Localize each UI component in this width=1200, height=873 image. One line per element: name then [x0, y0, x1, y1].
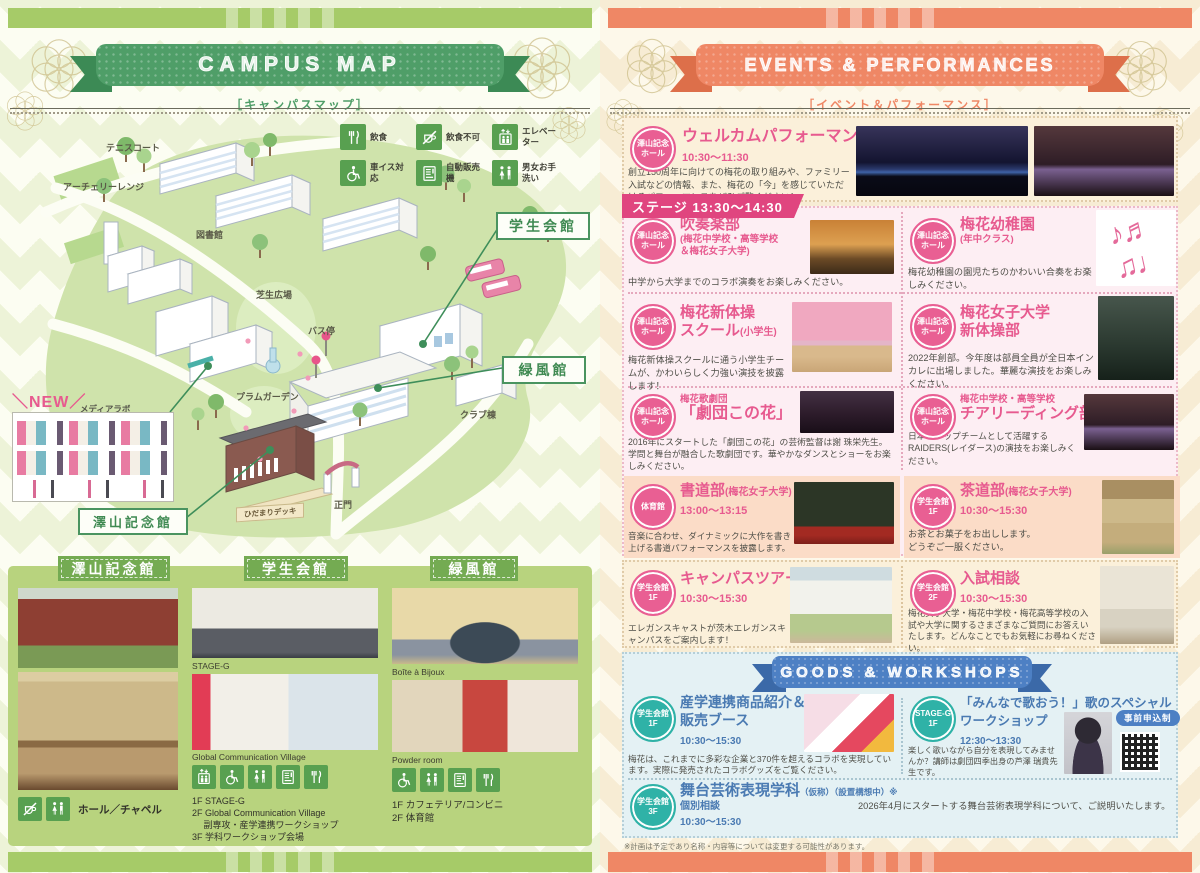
- venue-line2: ホール: [641, 327, 665, 337]
- event-brass-band: 澤山記念 ホール 吹奏楽部 (梅花中学校・高等学校 ＆梅花女子大学) 中学から大…: [624, 208, 900, 292]
- photo-gymnastics-kids: [792, 302, 892, 372]
- event-calligraphy: 体育館 書道部(梅花女子大学) 13:00～13:15 音楽に合わせ、ダイナミッ…: [624, 476, 900, 558]
- top-border-bar: [8, 8, 592, 28]
- event-subtitle: (梅花女子大学): [1005, 487, 1072, 498]
- footnote: ※計画は予定であり名称・内容等については変更する可能性があります。: [624, 841, 869, 852]
- legend-label: エレベーター: [522, 126, 562, 147]
- restroom-icon: [248, 765, 272, 789]
- photo-admissions-consult: [1100, 566, 1174, 644]
- event-collab-goods: 学生会館 1F 産学連携商品紹介＆ 販売ブース 10:30～15:30 梅花は、…: [624, 694, 900, 778]
- venue-line1: 学生会館: [637, 583, 669, 593]
- event-time: 10:30～15:30: [680, 813, 1180, 828]
- event-subtitle: (小学生): [740, 327, 777, 338]
- venue-badge: 澤山記念 ホール: [630, 126, 676, 172]
- venue-line1: 澤山記念: [637, 139, 669, 149]
- event-description: 梅花は、これまでに多彩な企業と370件を超えるコラボを実現しています。実際に発売…: [628, 754, 896, 776]
- venue-line2: 1F: [648, 719, 657, 729]
- venue-line1: STAGE-G: [915, 709, 951, 719]
- event-description: 2022年創部。今年度は部員全員が全日本インカレに出場しました。華麗な演技をお楽…: [908, 352, 1094, 391]
- legend-label: 男女お手洗い: [522, 162, 562, 183]
- goods-ribbon: GOODS & WORKSHOPS: [752, 656, 1052, 692]
- new-tag: ＼NEW／: [12, 388, 86, 412]
- event-title: 入試相談: [960, 570, 1020, 587]
- events-page: EVENTS & PERFORMANCES ［イベント＆パフォーマンス］ 澤山記…: [600, 0, 1200, 873]
- venue-line2: ホール: [641, 241, 665, 251]
- venue-badge: 体育館: [630, 484, 676, 530]
- no-food-icon: [18, 797, 42, 821]
- utensils-icon: [304, 765, 328, 789]
- event-tea-ceremony: 学生会館 1F 茶道部(梅花女子大学) 10:30～15:30 お茶とお菓子をお…: [904, 476, 1180, 558]
- event-sing-workshop: STAGE-G 1F 「みんなで歌おう！」歌のスペシャル ワークショップ 12:…: [904, 694, 1180, 778]
- venue-badge: 澤山記念 ホール: [910, 394, 956, 440]
- event-title-note: （仮称）（設置構想中）※: [800, 787, 898, 797]
- map-label-lawn-plaza: 芝生広場: [256, 289, 292, 300]
- venue-line1: 体育館: [641, 502, 665, 512]
- panel-header-sawayama: 澤山記念館: [58, 556, 170, 581]
- venue-line1: 澤山記念: [637, 407, 669, 417]
- photo-caption: STAGE-G: [192, 661, 230, 671]
- photo-stage-g: [192, 588, 378, 658]
- event-description: お茶とお菓子をお出しします。 どうぞご一服ください。: [908, 528, 1088, 554]
- event-stage-arts-dept: 学生会館 3F 舞台芸術表現学科（仮称）（設置構想中）※ 個別相談 10:30～…: [624, 782, 1180, 838]
- photo-caption: Global Communication Village: [192, 752, 306, 762]
- no-food-icon: [416, 124, 442, 150]
- venue-badge: 学生会館 2F: [910, 570, 956, 616]
- photo-global-communication-village: [192, 674, 378, 750]
- wheelchair-icon: [340, 160, 366, 186]
- venue-badge: 学生会館 1F: [910, 484, 956, 530]
- venue-line1: 澤山記念: [917, 231, 949, 241]
- venue-line2: ホール: [921, 241, 945, 251]
- event-title: チアリーディング部: [960, 405, 1094, 422]
- event-campus-tour: 学生会館 1F キャンパスツアー 10:30～15:30 エレガンスキャストが茨…: [624, 562, 900, 650]
- map-label-archery-range: アーチェリーレンジ: [63, 182, 144, 192]
- event-title: 産学連携商品紹介＆ 販売ブース: [680, 694, 806, 728]
- legend-label: 飲食: [370, 132, 410, 143]
- media-lab-illustration: [12, 412, 174, 502]
- photo-chapel: [18, 672, 178, 790]
- panel-header-ryokufu: 緑風館: [430, 556, 518, 581]
- map-label-club-building: クラブ棟: [460, 409, 497, 420]
- floor-line: 1F カフェテリア/コンビニ: [392, 800, 503, 813]
- photo-brass-band: [810, 220, 894, 274]
- venue-badge: 澤山記念 ホール: [910, 218, 956, 264]
- venue-line1: 澤山記念: [637, 231, 669, 241]
- map-label-plum-garden: プラムガーデン: [236, 391, 299, 402]
- stage-time-banner: ステージ 13:30～14:30: [622, 194, 804, 218]
- event-title: キャンパスツアー: [680, 570, 800, 587]
- photo-collab-goods: [804, 694, 894, 752]
- venue-line2: ホール: [921, 417, 945, 427]
- photo-opera: [800, 391, 894, 433]
- photo-calligraphy: [794, 482, 894, 544]
- panel-header-student-hall: 学生会館: [244, 556, 348, 581]
- bottom-border-bar: [608, 852, 1192, 872]
- qr-code: [1120, 732, 1160, 772]
- event-title: 茶道部: [960, 482, 1005, 499]
- event-description: 音楽に合わせ、ダイナミックに大作を書き上げる書道パフォーマンスを披露します。: [628, 530, 792, 554]
- event-description: 梅花幼稚園の園児たちのかわいい合奏をお楽しみください。: [908, 266, 1093, 292]
- event-subtitle: (梅花女子大学): [725, 487, 792, 498]
- goods-workshops-section: GOODS & WORKSHOPS 学生会館 1F 産学連携商品紹介＆ 販売ブー…: [622, 652, 1178, 838]
- tours-row: 学生会館 1F キャンパスツアー 10:30～15:30 エレガンスキャストが茨…: [622, 560, 1178, 648]
- venue-line1: 学生会館: [637, 709, 669, 719]
- event-title: 書道部: [680, 482, 725, 499]
- venue-line1: 澤山記念: [917, 407, 949, 417]
- header-divider: [10, 108, 590, 114]
- venue-badge: STAGE-G 1F: [910, 696, 956, 742]
- event-description: 2016年にスタートした「劇団この花」の芸術監督は謝 珠栄先生。学問と舞台が融合…: [628, 436, 896, 472]
- facility-icons-student-hall: [192, 765, 328, 789]
- stage-section: 澤山記念 ホール 吹奏楽部 (梅花中学校・高等学校 ＆梅花女子大学) 中学から大…: [622, 206, 1178, 556]
- photo-campus-tour: [790, 567, 892, 643]
- event-title: 梅花幼稚園: [960, 216, 1035, 233]
- venue-badge: 学生会館 3F: [630, 784, 676, 830]
- instruments-illustration: ♪♬♫♩: [1096, 210, 1176, 286]
- photo-boite-a-bijoux: [392, 588, 578, 664]
- photo-caption: Boîte à Bijoux: [392, 667, 444, 677]
- event-cheerleading: 澤山記念 ホール 梅花中学校・高等学校 チアリーディング部 日本のトップチームと…: [904, 386, 1180, 474]
- venue-line1: 澤山記念: [637, 317, 669, 327]
- map-label-tennis-court: テニスコート: [106, 143, 160, 153]
- utensils-icon: [476, 768, 500, 792]
- photo-sawayama-exterior: [18, 588, 178, 668]
- floor-list-ryokufu: 1F カフェテリア/コンビニ 2F 体育館: [392, 800, 503, 825]
- venue-line2: 1F: [648, 593, 657, 603]
- event-description: 2026年4月にスタートする舞台芸術表現学科について、ご説明いたします。: [858, 800, 1174, 813]
- map-box-label-ryokufu-hall: 緑風館: [502, 356, 586, 384]
- vending-icon: [276, 765, 300, 789]
- floor-line: 2F 体育館: [392, 813, 503, 826]
- event-description: エレガンスキャストが茨木エレガンスキャンパスをご案内します！: [628, 622, 786, 647]
- facility-label: ホール／チャペル: [78, 802, 162, 817]
- wheelchair-icon: [220, 765, 244, 789]
- photo-welcome-cheer: [1034, 126, 1174, 196]
- restroom-icon: [492, 160, 518, 186]
- venue-badge: 澤山記念 ホール: [630, 394, 676, 440]
- photo-cheerleading: [1084, 394, 1174, 450]
- event-gymnastics-school: 澤山記念 ホール 梅花新体操 スクール(小学生) 梅花新体操スクールに通う小学生…: [624, 292, 900, 386]
- facility-icons-sawayama: ホール／チャペル: [18, 797, 162, 821]
- venue-line2: 1F: [928, 507, 937, 517]
- event-description: 中学から大学までのコラボ演奏をお楽しみください。: [628, 276, 896, 289]
- restroom-icon: [420, 768, 444, 792]
- event-opera-troupe: 澤山記念 ホール 梅花歌劇団 「劇団この花」 2016年にスタートした「劇団この…: [624, 386, 900, 474]
- restroom-icon: [46, 797, 70, 821]
- events-ribbon: EVENTS & PERFORMANCES ［イベント＆パフォーマンス］: [670, 44, 1130, 92]
- bottom-border-bar: [8, 852, 592, 872]
- map-box-label-student-hall: 学生会館: [496, 212, 590, 240]
- page-title: EVENTS & PERFORMANCES: [744, 55, 1055, 76]
- facility-icons-ryokufu: [392, 768, 500, 792]
- photo-tea-ceremony: [1102, 480, 1174, 554]
- photo-powder-room: [392, 680, 578, 752]
- venue-line1: 澤山記念: [917, 317, 949, 327]
- event-title: 吹奏楽部: [680, 216, 740, 233]
- event-title: 「劇団この花」: [680, 405, 792, 422]
- venue-line2: 3F: [648, 807, 657, 817]
- header-divider: [610, 108, 1190, 114]
- map-label-bus-stop: バス停: [308, 325, 335, 336]
- event-title: 舞台芸術表現学科: [680, 782, 800, 799]
- top-border-bar: [608, 8, 1192, 28]
- venue-line2: ホール: [641, 417, 665, 427]
- photo-rhythmic-gymnastics: [1098, 296, 1174, 380]
- event-admissions-consult: 学生会館 2F 入試相談 10:30～15:30 梅花女子大学・梅花中学校・梅花…: [904, 562, 1180, 650]
- floor-line: 3F 学科ワークショップ会場: [192, 832, 339, 844]
- legend-label: 飲食不可: [446, 132, 486, 143]
- event-title: 梅花女子大学 新体操部: [960, 304, 1050, 339]
- floor-line: 2F Global Communication Village: [192, 808, 339, 820]
- legend-label: 車イス対応: [370, 162, 410, 183]
- floor-line: 副専攻・産学連携ワークショップ: [192, 820, 339, 832]
- floor-list-student-hall: 1F STAGE-G 2F Global Communication Villa…: [192, 796, 339, 844]
- wheelchair-icon: [392, 768, 416, 792]
- vending-icon: [448, 768, 472, 792]
- venue-line1: 学生会館: [917, 497, 949, 507]
- legend-label: 自動販売機: [446, 162, 486, 183]
- utensils-icon: [340, 124, 366, 150]
- venue-line2: ホール: [641, 149, 665, 159]
- venue-line2: 2F: [928, 593, 937, 603]
- venue-badge: 学生会館 1F: [630, 570, 676, 616]
- photo-caption: Powder room: [392, 755, 443, 765]
- venue-badge: 学生会館 1F: [630, 696, 676, 742]
- event-description: 楽しく歌いながら自分を表現してみませんか？講師は劇団四季出身の芦澤 瑞貴先生です…: [908, 746, 1060, 778]
- photo-welcome-stage: [856, 126, 1028, 196]
- campus-map-ribbon: CAMPUS MAP ［キャンパスマップ］: [70, 44, 530, 92]
- venue-badge: 澤山記念 ホール: [910, 304, 956, 350]
- event-kindergarten: 澤山記念 ホール 梅花幼稚園 (年中クラス) ♪♬♫♩ 梅花幼稚園の園児たちのか…: [904, 208, 1180, 292]
- map-legend: 飲食 飲食不可 エレベーター 車イス対応 自動販売機 男女お手洗い: [340, 124, 568, 186]
- campus-map-page: CAMPUS MAP ［キャンパスマップ］: [0, 0, 600, 873]
- venue-line2: ホール: [921, 327, 945, 337]
- vending-icon: [416, 160, 442, 186]
- venue-line2: 1F: [928, 719, 937, 729]
- map-label-library: 図書館: [196, 229, 223, 240]
- event-university-gymnastics: 澤山記念 ホール 梅花女子大学 新体操部 2022年創部。今年度は部員全員が全日…: [904, 292, 1180, 386]
- advance-application-badge: 事前申込制: [1116, 710, 1180, 726]
- venue-badge: 澤山記念 ホール: [630, 218, 676, 264]
- photo-instructor: [1064, 712, 1112, 774]
- goods-title: GOODS & WORKSHOPS: [780, 664, 1023, 681]
- floor-line: 1F STAGE-G: [192, 796, 339, 808]
- elevator-icon: [192, 765, 216, 789]
- venue-badge: 澤山記念 ホール: [630, 304, 676, 350]
- elevator-icon: [492, 124, 518, 150]
- venue-line1: 学生会館: [637, 797, 669, 807]
- page-title: CAMPUS MAP: [198, 53, 402, 77]
- map-box-label-sawayama-hall: 澤山記念館: [78, 508, 188, 535]
- map-label-main-gate: 正門: [334, 500, 352, 510]
- venue-line1: 学生会館: [917, 583, 949, 593]
- welcome-performance-card: 澤山記念 ホール ウェルカムパフォーマンス 10:30～11:30 創立150周…: [622, 116, 1178, 202]
